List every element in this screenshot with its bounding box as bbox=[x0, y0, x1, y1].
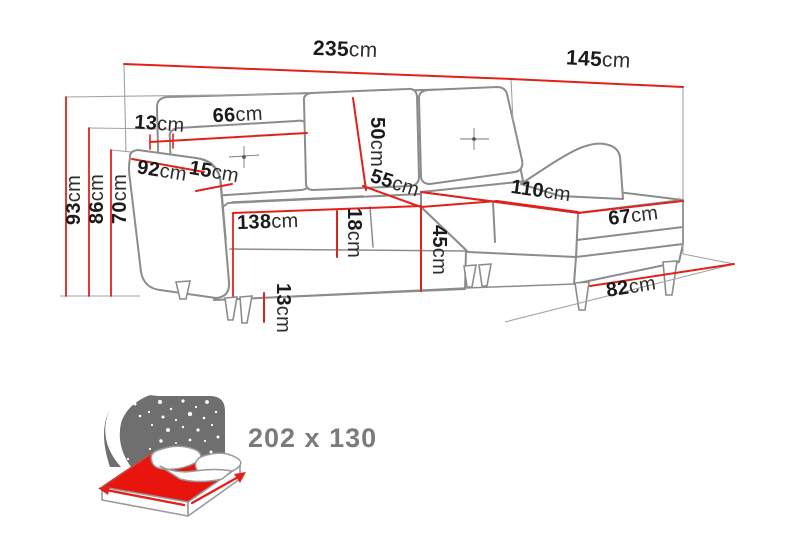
label-back-cushion-width: 66cm bbox=[212, 103, 263, 128]
label-back-clearance: 13cm bbox=[134, 111, 186, 136]
label-total-height: 93cm bbox=[63, 175, 85, 225]
floor-edge-right bbox=[683, 254, 734, 264]
dim-line-total-depth bbox=[511, 79, 683, 87]
sleeping-function-icon: 202 x 130 bbox=[98, 393, 377, 516]
label-back-cushion-height: 50cm bbox=[366, 117, 388, 167]
leg-front-left-b bbox=[240, 296, 252, 323]
label-total-depth: 145cm bbox=[566, 46, 632, 72]
label-seat-height: 45cm bbox=[428, 225, 450, 275]
sofa-dimension-diagram: 235cm 145cm 93cm 86cm 70cm 13cm 66cm 50c… bbox=[0, 0, 800, 533]
back-cushion-corner bbox=[419, 87, 522, 184]
leg-armrest bbox=[176, 281, 190, 299]
label-armrest-height: 70cm bbox=[109, 174, 131, 224]
leg-corner-a bbox=[464, 265, 476, 287]
label-seat-width: 138cm bbox=[237, 210, 299, 234]
leg-corner-b bbox=[479, 264, 491, 286]
dim-line-total-width bbox=[124, 64, 511, 79]
label-total-width: 235cm bbox=[313, 37, 378, 62]
label-seat-cushion-height: 18cm bbox=[343, 208, 365, 258]
leg-front-left-a bbox=[225, 297, 237, 320]
leg-chaise-left bbox=[575, 282, 589, 310]
tuft-button-corner bbox=[472, 137, 476, 141]
diagram-canvas: 235cm 145cm 93cm 86cm 70cm 13cm 66cm 50c… bbox=[0, 0, 800, 533]
label-backrest-height: 86cm bbox=[86, 174, 108, 224]
tuft-button-left bbox=[242, 155, 246, 159]
leg-chaise-right bbox=[663, 261, 677, 295]
label-leg-height: 13cm bbox=[272, 283, 294, 333]
ext-armrest-top bbox=[111, 150, 131, 152]
ext-left-vertical bbox=[124, 64, 126, 152]
sleeping-size-label: 202 x 130 bbox=[248, 423, 377, 453]
